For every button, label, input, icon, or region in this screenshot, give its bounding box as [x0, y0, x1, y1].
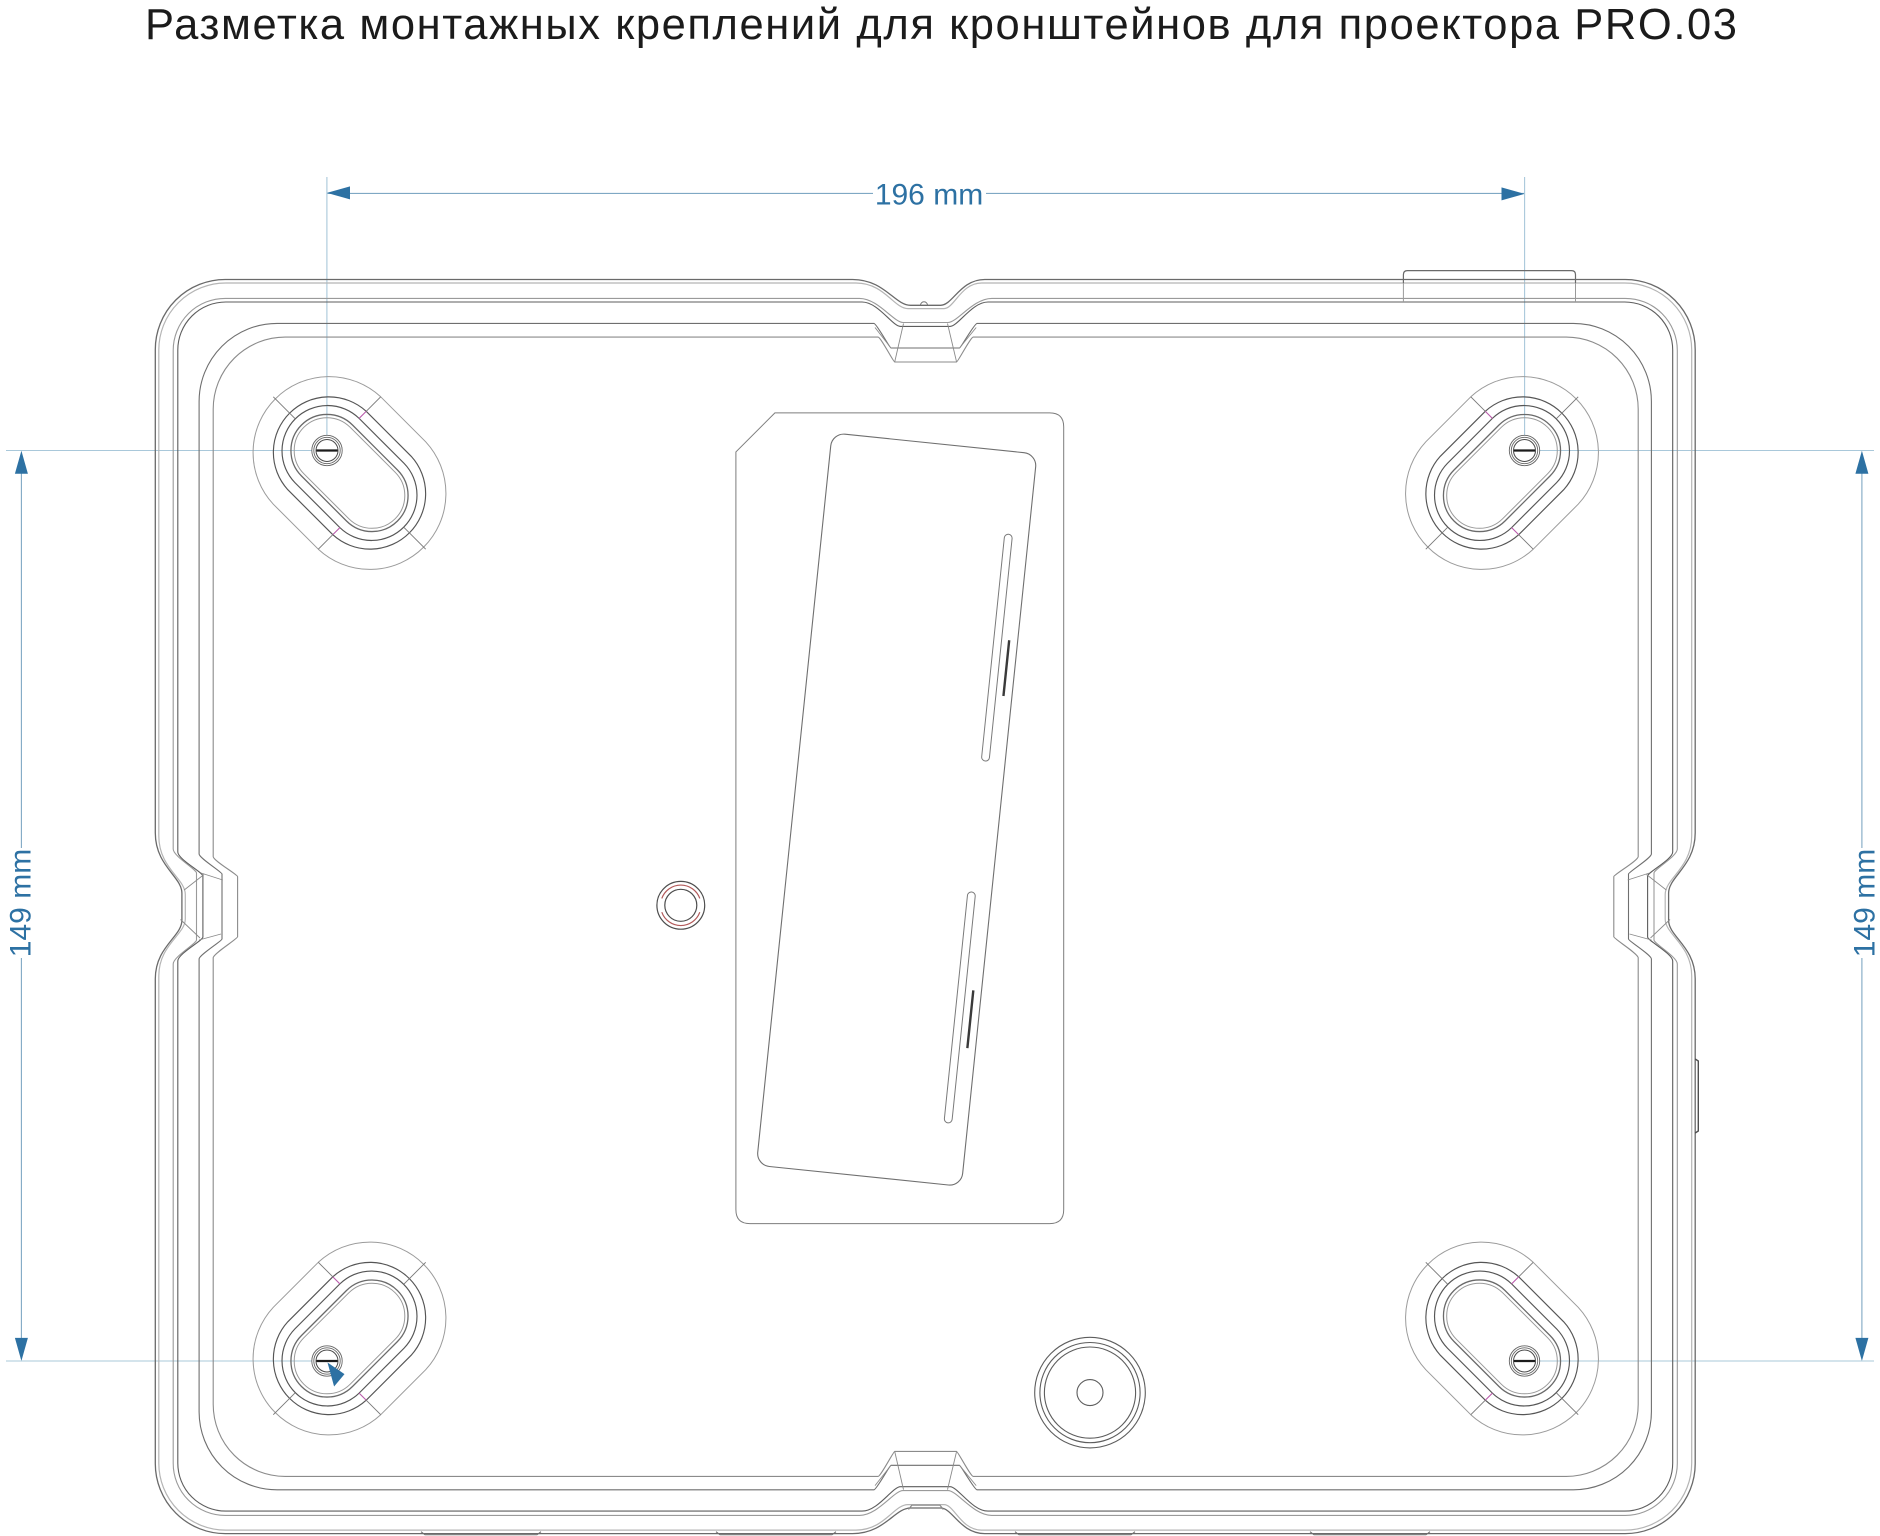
svg-text:Разметка монтажных креплений д: Разметка монтажных креплений для кронште…	[145, 1, 1737, 49]
svg-text:149 mm: 149 mm	[1849, 849, 1880, 957]
svg-text:196 mm: 196 mm	[875, 179, 983, 212]
svg-text:149 mm: 149 mm	[5, 849, 38, 957]
